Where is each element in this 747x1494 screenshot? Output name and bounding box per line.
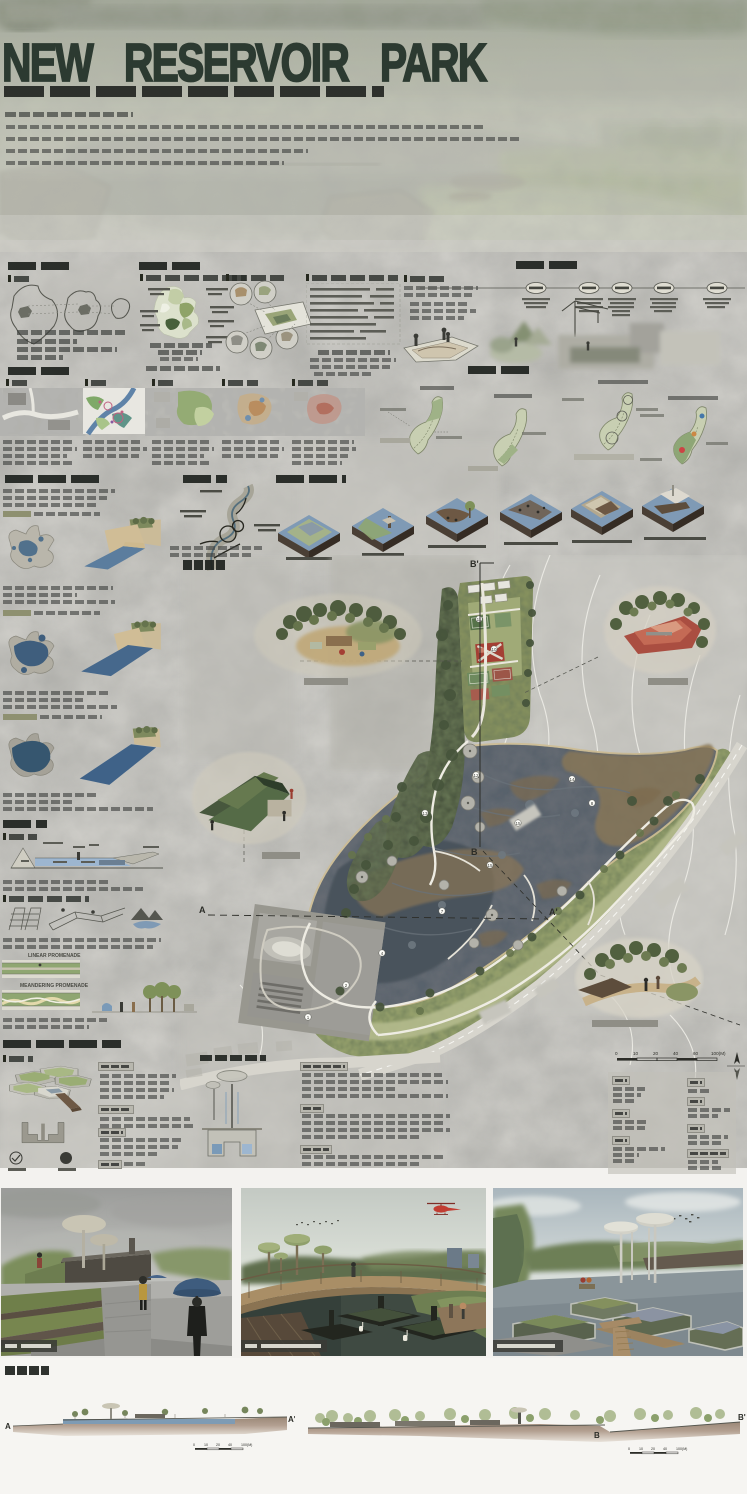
svg-text:0: 0 [615, 1051, 618, 1056]
svg-text:A: A [5, 1422, 11, 1431]
svg-text:10: 10 [633, 1051, 639, 1056]
svg-text:B': B' [738, 1413, 746, 1422]
svg-text:20: 20 [653, 1051, 659, 1056]
svg-text:12: 12 [473, 773, 479, 778]
svg-text:0: 0 [628, 1447, 630, 1451]
svg-text:40: 40 [663, 1447, 667, 1451]
svg-text:B: B [594, 1431, 600, 1440]
svg-text:14: 14 [569, 777, 575, 782]
svg-text:60: 60 [693, 1051, 699, 1056]
svg-text:10: 10 [204, 1443, 208, 1447]
svg-text:B': B' [470, 559, 479, 569]
svg-text:A': A' [288, 1415, 295, 1424]
svg-text:15: 15 [515, 821, 521, 826]
svg-text:40: 40 [228, 1443, 232, 1447]
svg-text:15: 15 [487, 863, 493, 868]
svg-text:20: 20 [216, 1443, 220, 1447]
svg-text:11: 11 [477, 617, 482, 622]
svg-text:40: 40 [673, 1051, 679, 1056]
svg-text:A': A' [549, 907, 558, 917]
svg-text:0: 0 [193, 1443, 195, 1447]
svg-text:100(M): 100(M) [676, 1447, 687, 1451]
svg-text:100(M): 100(M) [711, 1051, 726, 1056]
svg-text:13: 13 [422, 811, 428, 816]
svg-text:10: 10 [491, 647, 497, 652]
svg-text:MEANDERING PROMENADE: MEANDERING PROMENADE [20, 983, 89, 989]
svg-text:20: 20 [651, 1447, 655, 1451]
svg-text:100(M): 100(M) [241, 1443, 252, 1447]
svg-text:LINEAR PROMENADE: LINEAR PROMENADE [28, 953, 81, 959]
svg-text:B: B [471, 847, 478, 857]
svg-text:10: 10 [639, 1447, 643, 1451]
svg-text:A: A [199, 905, 206, 915]
